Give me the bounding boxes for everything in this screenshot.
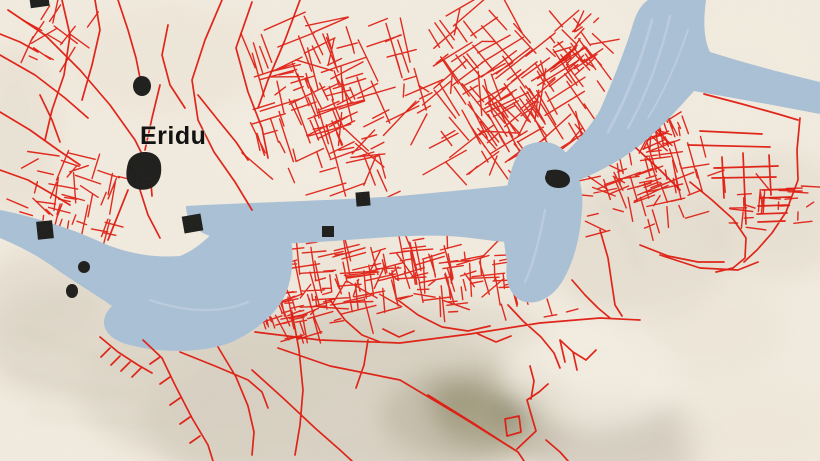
map-svg: Eridu [0, 0, 820, 461]
map-image: Eridu [0, 0, 820, 461]
grain-texture [0, 0, 820, 461]
